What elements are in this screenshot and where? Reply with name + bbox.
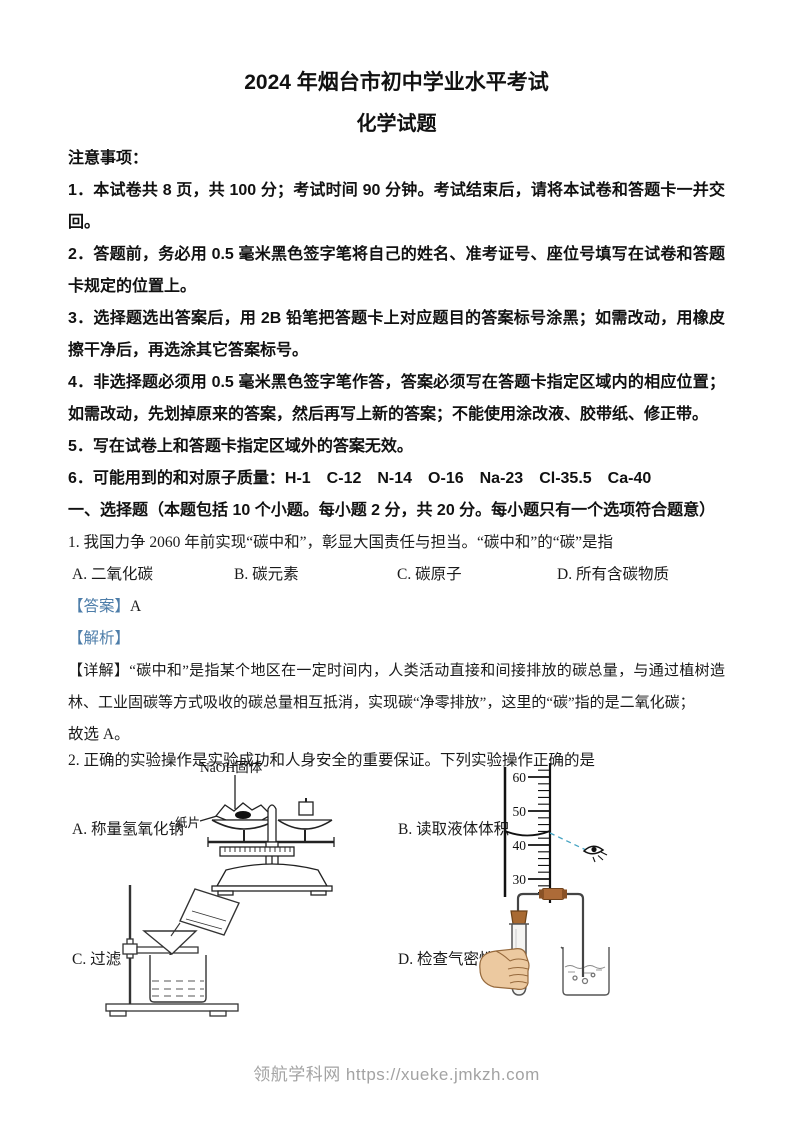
watermark: 领航学科网 https://xueke.jmkzh.com: [0, 1060, 793, 1085]
page-title: 2024 年烟台市初中学业水平考试: [0, 0, 793, 96]
stand-base: [106, 1004, 238, 1011]
answer-label: 【答案】: [68, 598, 130, 615]
page-subtitle: 化学试题: [0, 111, 793, 137]
q1-option-c: C. 碳原子: [397, 559, 462, 591]
tick-50: 50: [513, 804, 527, 819]
notice-item-4: 4．非选择题必须用 0.5 毫米黑色签字笔作答，答案必须写在答题卡指定区域内的相…: [0, 367, 793, 431]
notice-item-6: 6．可能用到的和对原子质量：H-1 C-12 N-14 O-16 Na-23 C…: [0, 463, 793, 495]
tick-40: 40: [513, 838, 527, 853]
weight-block: [299, 802, 313, 815]
balance-right-pan: [278, 820, 332, 829]
sight-line: [550, 833, 586, 850]
q1-answer-line: 【答案】A: [0, 591, 793, 623]
pouring-beaker: [180, 889, 239, 935]
naoh-solid-label: NaOH固体: [200, 760, 263, 775]
balance-left-pan: [212, 820, 276, 829]
q1-option-a: A. 二氧化碳: [72, 559, 153, 591]
q1-stem: 1. 我国力争 2060 年前实现“碳中和”，彰显大国责任与担当。“碳中和”的“…: [0, 527, 793, 559]
section-heading: 一、选择题（本题包括 10 个小题。每小题 2 分，共 20 分。每小题只有一个…: [0, 495, 793, 527]
balance-pillar: [268, 805, 276, 842]
graduated-cylinder-diagram: 60 50 40 30: [492, 763, 622, 903]
major-ticks: [528, 777, 550, 879]
beaker: [561, 947, 609, 995]
q2-option-a-label: A. 称量氢氧化钠: [72, 819, 184, 841]
notice-item-3: 3．选择题选出答案后，用 2B 铅笔把答题卡上对应题目的答案标号涂黑；如需改动，…: [0, 303, 793, 367]
rubber-stopper: [511, 911, 527, 924]
gas-tightness-diagram: [472, 883, 647, 1033]
filtration-diagram: [98, 883, 248, 1023]
notice-item-5: 5．写在试卷上和答题卡指定区域外的答案无效。: [0, 431, 793, 463]
hand: [480, 949, 529, 990]
paper-label: 纸片: [175, 816, 200, 830]
q1-analysis-line: 【解析】: [0, 623, 793, 655]
exam-paper-page: 2024 年烟台市初中学业水平考试 化学试题 注意事项： 1．本试卷共 8 页，…: [0, 0, 793, 1122]
collection-beaker: [150, 955, 206, 1002]
answer-value: A: [130, 598, 141, 615]
balance-ruler: [220, 847, 294, 856]
notice-item-1: 1．本试卷共 8 页，共 100 分；考试时间 90 分钟。考试结束后，请将本试…: [0, 175, 793, 239]
tick-60: 60: [513, 770, 527, 785]
notice-item-2: 2．答题前，务必用 0.5 毫米黑色签字笔将自己的姓名、准考证号、座位号填写在试…: [0, 239, 793, 303]
q1-detail: 【详解】“碳中和”是指某个地区在一定时间内，人类活动直接和间接排放的碳总量，与通…: [0, 655, 793, 719]
q1-option-d: D. 所有含碳物质: [557, 559, 669, 591]
rubber-connector: [542, 889, 564, 900]
q1-option-b: B. 碳元素: [234, 559, 299, 591]
q2-figures-area: A. 称量氢氧化钠 B. 读取液体体积 C. 过滤 D. 检查气密性 NaOH固…: [0, 771, 793, 1071]
balance-diagram: NaOH固体 纸片: [170, 759, 340, 899]
naoh-solid-sample: [235, 811, 251, 819]
q1-options-row: A. 二氧化碳 B. 碳元素 C. 碳原子 D. 所有含碳物质: [0, 559, 793, 591]
notice-heading: 注意事项：: [0, 143, 793, 175]
analysis-label: 【解析】: [68, 630, 130, 647]
